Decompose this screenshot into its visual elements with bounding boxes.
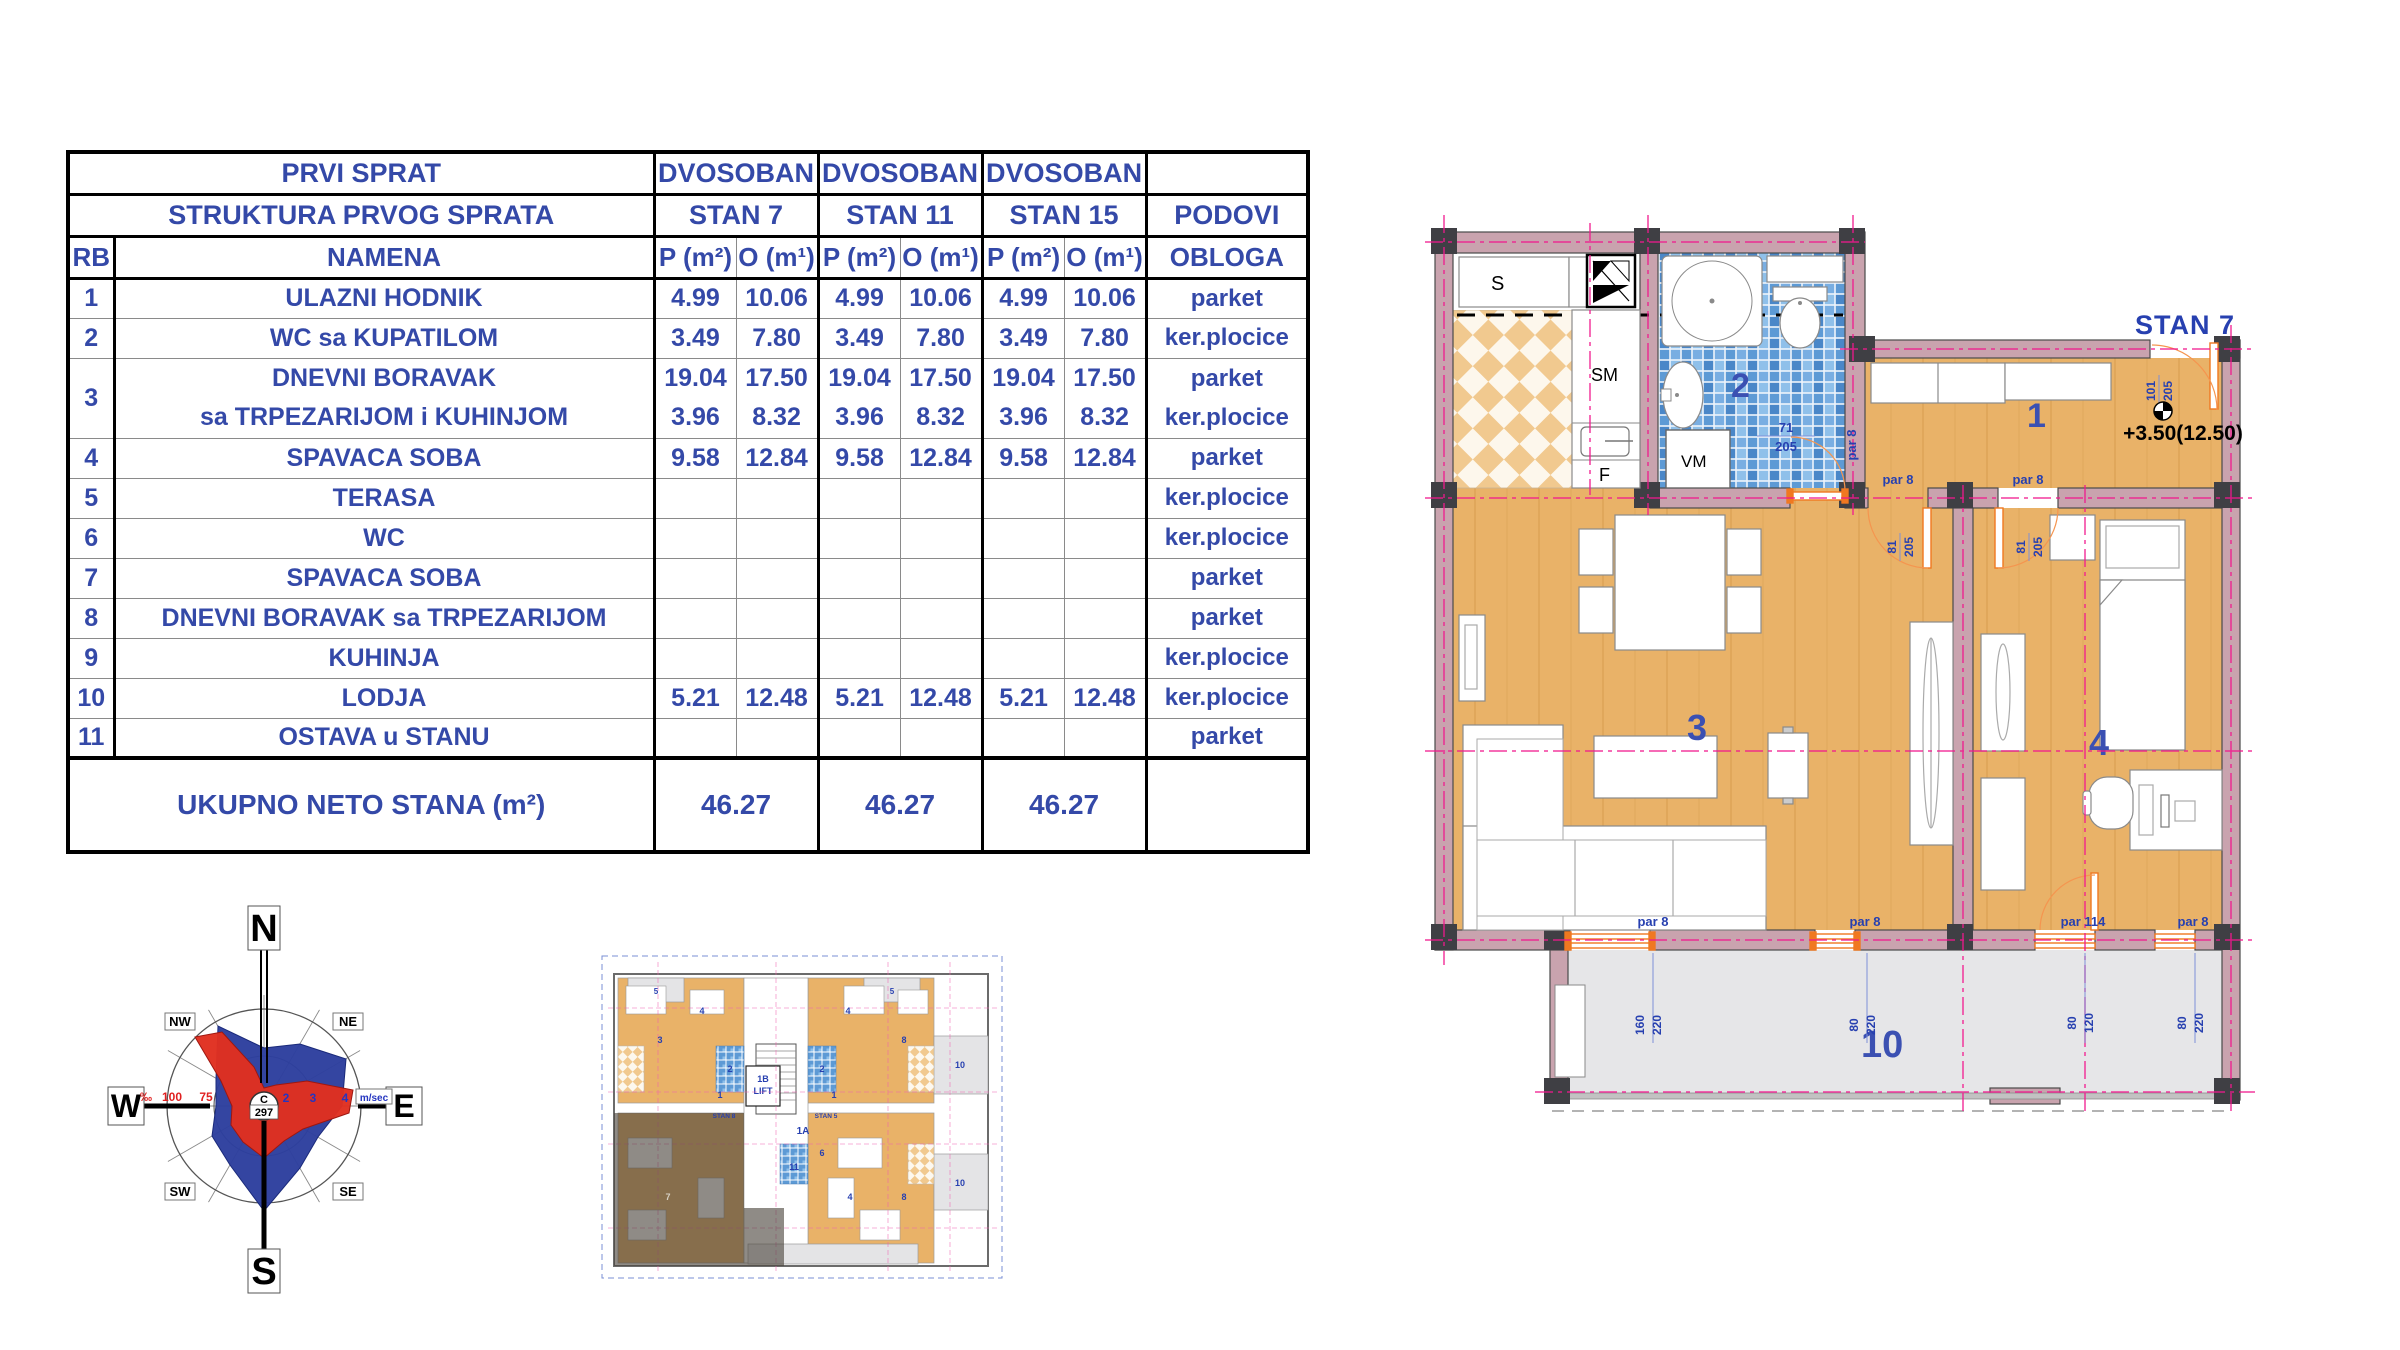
area-spec-table: PRVI SPRAT DVOSOBAN DVOSOBAN DVOSOBAN ST…: [66, 150, 1310, 854]
cell-o: [900, 478, 982, 518]
lift-label: LIFT: [754, 1086, 773, 1096]
chair: [1579, 587, 1613, 633]
speed-3: 3: [310, 1091, 317, 1105]
dim-220: 220: [2192, 1013, 2206, 1033]
cell-obloga: parket: [1146, 718, 1308, 758]
apartment-floor-plan: S SM F: [1395, 195, 2265, 1125]
scale-75: 75: [199, 1090, 213, 1104]
chair: [1727, 587, 1761, 633]
namena-header: NAMENA: [114, 236, 654, 278]
row-number: 7: [68, 558, 114, 598]
closet-s-label: S: [1491, 273, 1504, 295]
cell-o: [900, 598, 982, 638]
dim-205: 205: [2031, 537, 2045, 557]
cell-p: [654, 598, 736, 638]
cell-value: ker.plocice: [1148, 398, 1307, 437]
par8-label: par 8: [2012, 472, 2043, 487]
cell-value: 19.04: [656, 359, 736, 398]
cell-o: 17.50 8.32: [736, 358, 818, 438]
mini-room-8: 8: [901, 1192, 906, 1202]
cell-obloga: ker.plocice: [1146, 518, 1308, 558]
cell-p: 9.58: [654, 438, 736, 478]
par8-label: par 8: [1844, 429, 1859, 460]
dim-81: 81: [2014, 540, 2028, 554]
cell-p: [654, 518, 736, 558]
overview-floor-plan: 1B LIFT 1A STAN 8 STAN 5 3 4 4 8 2 2 1 1…: [598, 948, 1008, 1286]
cell-o: 10.06: [1064, 278, 1146, 318]
dim-205: 205: [1775, 439, 1797, 454]
rb-header: RB: [68, 236, 114, 278]
room-name: WC: [114, 518, 654, 558]
room-name: SPAVACA SOBA: [114, 558, 654, 598]
cell-p: 4.99: [818, 278, 900, 318]
cell-value: 3.96: [656, 398, 736, 437]
room-4-number: 4: [2089, 722, 2109, 763]
stan-header: STAN 15: [982, 194, 1146, 236]
cell-o: [1064, 718, 1146, 758]
mini-room-8: 8: [901, 1035, 906, 1045]
cell-o: [900, 558, 982, 598]
cell-o: [736, 638, 818, 678]
stan-header: STAN 7: [654, 194, 818, 236]
par8-label: par 8: [1882, 472, 1913, 487]
row-number: 2: [68, 318, 114, 358]
mini-room-6: 6: [819, 1148, 824, 1158]
total-value: 46.27: [982, 758, 1146, 852]
cell-o: 12.84: [1064, 438, 1146, 478]
cell-p: 4.99: [654, 278, 736, 318]
cell-p: [654, 478, 736, 518]
row-number: 8: [68, 598, 114, 638]
room-name: ULAZNI HODNIK: [114, 278, 654, 318]
dim-205: 205: [2161, 381, 2175, 401]
row-number: 1: [68, 278, 114, 318]
cell-o: 10.06: [736, 278, 818, 318]
cell-p: 3.49: [818, 318, 900, 358]
row-number: 6: [68, 518, 114, 558]
room-name: TERASA: [114, 478, 654, 518]
unit-label: m/sec: [360, 1093, 389, 1104]
cell-p: [982, 718, 1064, 758]
sw-label: SW: [170, 1184, 192, 1199]
cell-o: [1064, 638, 1146, 678]
room-name: KUHINJA: [114, 638, 654, 678]
f-label: F: [1599, 465, 1610, 485]
par114-label: par 114: [2061, 914, 2107, 929]
sm-label: SM: [1591, 365, 1618, 385]
nw-label: NW: [169, 1014, 191, 1029]
north-label: N: [250, 908, 277, 950]
stan7-title: STAN 7: [2135, 310, 2235, 340]
cell-p: 5.21: [982, 678, 1064, 718]
obloga-header: OBLOGA: [1146, 236, 1308, 278]
cell-o: 12.48: [736, 678, 818, 718]
cell-value: parket: [1148, 359, 1307, 398]
cell-p: [818, 558, 900, 598]
mini-room-4: 4: [699, 1006, 704, 1016]
cell-p: 9.58: [818, 438, 900, 478]
cell-obloga: parket: [1146, 438, 1308, 478]
speed-2: 2: [283, 1091, 290, 1105]
cell-obloga: ker.plocice: [1146, 638, 1308, 678]
p-header: P (m²): [982, 236, 1064, 278]
total-value: 46.27: [654, 758, 818, 852]
row-number: 3: [68, 358, 114, 438]
wind-rose: C 297 N S W E NW NE SW SE ‰ 100 75 2 3 4…: [58, 893, 478, 1305]
cell-o: 12.48: [900, 678, 982, 718]
o-header: O (m¹): [736, 236, 818, 278]
cell-o: [736, 518, 818, 558]
room-name: DNEVNI BORAVAK sa TRPEZARIJOM: [114, 598, 654, 638]
cell-p: [818, 518, 900, 558]
scale-100: 100: [162, 1090, 182, 1104]
mini-room-4: 4: [845, 1006, 850, 1016]
dining-table: [1615, 515, 1725, 650]
cell-o: 7.80: [736, 318, 818, 358]
south-label: S: [251, 1251, 276, 1293]
cell-p: [818, 478, 900, 518]
cell-o: [736, 478, 818, 518]
row-number: 9: [68, 638, 114, 678]
kitchen-counter: SM F: [1572, 310, 1640, 488]
cell-value: 3.96: [984, 398, 1064, 437]
cell-p: [818, 718, 900, 758]
total-value: 46.27: [818, 758, 982, 852]
east-label: E: [393, 1088, 414, 1124]
cell-o: [736, 718, 818, 758]
row-number: 5: [68, 478, 114, 518]
cell-o: 17.50 8.32: [1064, 358, 1146, 438]
speed-4: 4: [342, 1091, 349, 1105]
mini-room-11: 11: [789, 1162, 799, 1172]
mini-room-3: 3: [657, 1035, 662, 1045]
par8-label: par 8: [2177, 914, 2208, 929]
dim-220: 220: [1650, 1015, 1664, 1035]
p-header: P (m²): [818, 236, 900, 278]
dim-120: 120: [2082, 1013, 2096, 1033]
wardrobe-sliding: [1910, 622, 1953, 845]
cell-p: [818, 598, 900, 638]
ne-label: NE: [339, 1014, 357, 1029]
dim-160: 160: [1633, 1015, 1647, 1035]
wardrobe-sliding: [1981, 634, 2025, 751]
cell-o: 17.50 8.32: [900, 358, 982, 438]
cell-p: 5.21: [818, 678, 900, 718]
room-1-number: 1: [2027, 397, 2046, 435]
center-label-c: C: [260, 1094, 268, 1106]
cell-value: 8.32: [901, 398, 981, 437]
loggia-bench: [1555, 985, 1585, 1077]
cell-value: 8.32: [737, 398, 817, 437]
chair: [1579, 529, 1613, 575]
permille-label: ‰: [140, 1090, 152, 1104]
cell-o: [1064, 558, 1146, 598]
cell-value: 3.96: [820, 398, 900, 437]
cell-p: [818, 638, 900, 678]
room-name-line2: sa TRPEZARIJOM i KUHINJOM: [116, 398, 653, 437]
cell-o: [736, 598, 818, 638]
cell-p: [654, 718, 736, 758]
cell-p: [654, 558, 736, 598]
room-name: SPAVACA SOBA: [114, 438, 654, 478]
mini-room-1: 1: [717, 1090, 722, 1100]
wardrobe: [1981, 778, 2025, 890]
room-name: DNEVNI BORAVAK sa TRPEZARIJOM i KUHINJOM: [114, 358, 654, 438]
room-name: OSTAVA u STANU: [114, 718, 654, 758]
empty-cell: [1146, 152, 1308, 194]
center-label-297: 297: [255, 1107, 273, 1119]
cell-obloga: ker.plocice: [1146, 678, 1308, 718]
bath-shelf: [1767, 256, 1843, 282]
cell-p: 3.49: [654, 318, 736, 358]
apartment-type: DVOSOBAN: [654, 152, 818, 194]
cell-p: 5.21: [654, 678, 736, 718]
cell-p: [982, 598, 1064, 638]
cell-o: [1064, 518, 1146, 558]
mini-room-4: 4: [847, 1192, 852, 1202]
dim-220: 220: [1864, 1015, 1878, 1035]
room-3-number: 3: [1687, 707, 1707, 748]
cell-value: 17.50: [1065, 359, 1145, 398]
lift-1b-label: 1B: [757, 1074, 769, 1084]
cell-o: 10.06: [900, 278, 982, 318]
cell-obloga: parket ker.plocice: [1146, 358, 1308, 438]
cell-o: 7.80: [900, 318, 982, 358]
loggia-parapet: [1552, 1093, 2224, 1099]
cell-obloga: parket: [1146, 598, 1308, 638]
o-header: O (m¹): [1064, 236, 1146, 278]
dim-205: 205: [1902, 537, 1916, 557]
bed: [2100, 520, 2185, 750]
room-name: LODJA: [114, 678, 654, 718]
mini-room-10: 10: [955, 1178, 965, 1188]
cell-p: 19.04 3.96: [982, 358, 1064, 438]
flue-shaft: [1587, 255, 1635, 307]
dim-71: 71: [1779, 420, 1793, 435]
cell-value: 8.32: [1065, 398, 1145, 437]
dim-80: 80: [1847, 1018, 1861, 1032]
mini-room-7: 7: [665, 1192, 670, 1202]
mini-room-5: 5: [890, 987, 895, 996]
cell-obloga: ker.plocice: [1146, 478, 1308, 518]
stan8-label: STAN 8: [713, 1113, 736, 1120]
dim-81: 81: [1885, 540, 1899, 554]
architectural-sheet: PRVI SPRAT DVOSOBAN DVOSOBAN DVOSOBAN ST…: [0, 0, 2400, 1350]
cell-o: [900, 518, 982, 558]
total-label: UKUPNO NETO STANA (m²): [68, 758, 654, 852]
cell-value: 17.50: [737, 359, 817, 398]
chair: [1727, 529, 1761, 575]
stan-header: STAN 11: [818, 194, 982, 236]
cell-p: [982, 518, 1064, 558]
cell-o: [900, 718, 982, 758]
row-number: 4: [68, 438, 114, 478]
cell-p: 9.58: [982, 438, 1064, 478]
table-subtitle: STRUKTURA PRVOG SPRATA: [68, 194, 654, 236]
par8-label: par 8: [1637, 914, 1668, 929]
cell-p: [654, 638, 736, 678]
cell-o: 12.48: [1064, 678, 1146, 718]
cell-o: [900, 638, 982, 678]
vm-label: VM: [1681, 452, 1707, 471]
row-number: 10: [68, 678, 114, 718]
cell-p: 4.99: [982, 278, 1064, 318]
core-1a-label: 1A: [797, 1126, 810, 1137]
cell-value: 17.50: [901, 359, 981, 398]
cell-p: 19.04 3.96: [654, 358, 736, 438]
level-marker-icon: [2154, 402, 2172, 420]
par8-label: par 8: [1849, 914, 1880, 929]
west-label: W: [111, 1088, 142, 1124]
cell-value: 19.04: [820, 359, 900, 398]
apartment-type: DVOSOBAN: [818, 152, 982, 194]
mini-room-2: 2: [727, 1064, 732, 1074]
table-title: PRVI SPRAT: [68, 152, 654, 194]
cell-o: 12.84: [736, 438, 818, 478]
row-number: 11: [68, 718, 114, 758]
cell-obloga: parket: [1146, 558, 1308, 598]
room-name-line1: DNEVNI BORAVAK: [116, 359, 653, 398]
p-header: P (m²): [654, 236, 736, 278]
cell-p: [982, 478, 1064, 518]
cell-obloga: ker.plocice: [1146, 318, 1308, 358]
cell-p: 3.49: [982, 318, 1064, 358]
cell-o: [1064, 598, 1146, 638]
dim-101: 101: [2144, 381, 2158, 401]
dim-80: 80: [2065, 1016, 2079, 1030]
par8-vertical: par 8: [1844, 429, 1859, 460]
se-label: SE: [339, 1184, 357, 1199]
cell-o: 12.84: [900, 438, 982, 478]
apartment-type: DVOSOBAN: [982, 152, 1146, 194]
mini-room-10: 10: [955, 1060, 965, 1070]
cell-obloga: parket: [1146, 278, 1308, 318]
desk: [2130, 770, 2222, 850]
podovi-header: PODOVI: [1146, 194, 1308, 236]
cell-o: 7.80: [1064, 318, 1146, 358]
cell-o: [1064, 478, 1146, 518]
hallway-area: [1871, 363, 2111, 403]
mini-room-2: 2: [819, 1064, 824, 1074]
cell-value: 19.04: [984, 359, 1064, 398]
mini-room-5: 5: [654, 987, 659, 996]
empty-cell: [1146, 758, 1308, 852]
side-table: [1768, 733, 1808, 798]
cell-o: [736, 558, 818, 598]
stan5-label: STAN 5: [815, 1113, 838, 1120]
mini-room-1: 1: [831, 1090, 836, 1100]
dim-80: 80: [2175, 1016, 2189, 1030]
room-2-number: 2: [1731, 367, 1750, 405]
room-name: WC sa KUPATILOM: [114, 318, 654, 358]
cell-p: [982, 638, 1064, 678]
cell-p: 19.04 3.96: [818, 358, 900, 438]
o-header: O (m¹): [900, 236, 982, 278]
level-label: +3.50(12.50): [2123, 422, 2243, 445]
cell-p: [982, 558, 1064, 598]
